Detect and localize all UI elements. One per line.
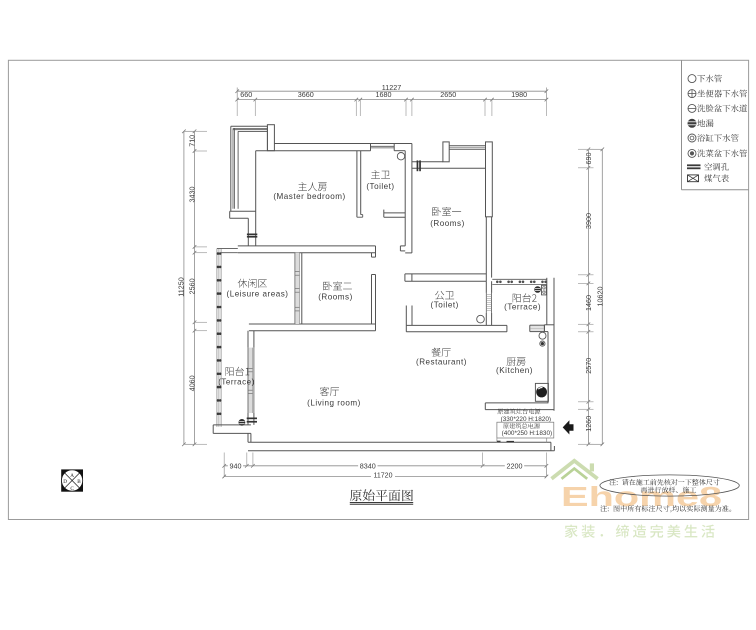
svg-text:3900: 3900 — [584, 213, 593, 229]
svg-text:(Rooms): (Rooms) — [430, 219, 465, 228]
svg-text:4060: 4060 — [187, 375, 196, 391]
svg-text:(Kitchen): (Kitchen) — [496, 366, 533, 375]
svg-text:A: A — [70, 473, 74, 479]
svg-text:710: 710 — [187, 135, 196, 147]
svg-text:1460: 1460 — [584, 295, 593, 311]
svg-text:(Master bedroom): (Master bedroom) — [273, 192, 345, 201]
svg-text:940: 940 — [230, 461, 242, 470]
svg-text:2650: 2650 — [440, 90, 456, 99]
svg-text:(Leisure areas): (Leisure areas) — [227, 290, 289, 299]
svg-text:(Living room): (Living room) — [307, 399, 361, 408]
svg-text:(Toilet): (Toilet) — [366, 182, 394, 191]
svg-text:D: D — [63, 479, 67, 485]
svg-text:2570: 2570 — [584, 358, 593, 374]
svg-text:(Rooms): (Rooms) — [318, 292, 353, 301]
svg-text:(400*250 H:1830): (400*250 H:1830) — [502, 430, 552, 437]
svg-text:(Restaurant): (Restaurant) — [416, 357, 467, 366]
svg-text:B: B — [77, 479, 81, 485]
svg-text:1260: 1260 — [584, 416, 593, 432]
svg-text:690: 690 — [584, 153, 593, 165]
svg-text:2560: 2560 — [187, 278, 196, 294]
svg-text:3430: 3430 — [187, 187, 196, 203]
svg-text:(330*220 H:1820): (330*220 H:1820) — [501, 416, 551, 423]
svg-text:3660: 3660 — [298, 90, 314, 99]
svg-text:(Terrace): (Terrace) — [504, 302, 541, 311]
svg-text:660: 660 — [240, 90, 252, 99]
svg-text:10620: 10620 — [595, 287, 604, 307]
svg-text:11720: 11720 — [374, 473, 393, 480]
svg-text:(Terrace): (Terrace) — [218, 378, 255, 387]
svg-text:C: C — [70, 486, 74, 492]
svg-text:11250: 11250 — [177, 277, 186, 296]
svg-text:2200: 2200 — [507, 461, 523, 470]
svg-text:Ehome8: Ehome8 — [561, 481, 722, 512]
svg-text:1680: 1680 — [376, 90, 392, 99]
svg-text:(Toilet): (Toilet) — [431, 301, 459, 310]
svg-text:1980: 1980 — [511, 90, 527, 99]
svg-text:8340: 8340 — [360, 461, 376, 470]
